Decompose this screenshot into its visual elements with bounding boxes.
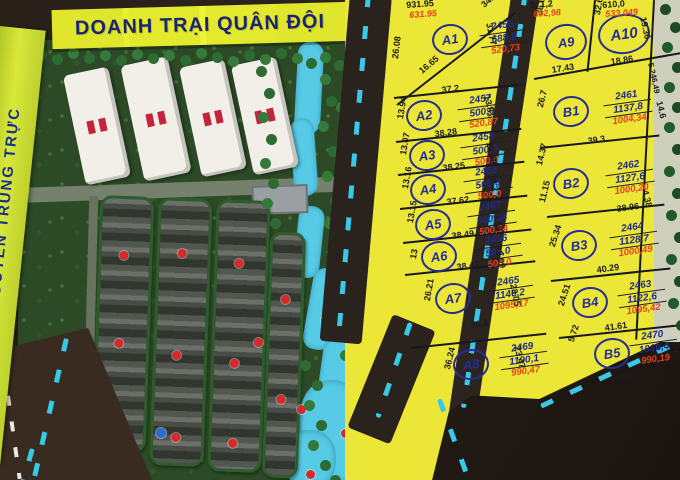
plot-label: B4 [581,294,600,311]
plot-circle: A7 [433,281,473,317]
red-marker-icon [119,251,128,260]
red-marker-icon [230,359,239,368]
red-marker-icon [178,249,187,258]
plot-circle: A6 [419,239,459,275]
dimension-label: 631.95 [409,8,437,20]
red-marker-icon [297,405,306,414]
masterplan-board: ĐƯỜNG NGUYỄN TRUNG TRỰC DOANH TRẠI QUÂN … [0,0,680,480]
building-sign [145,111,166,128]
plot-label: A6 [430,248,449,265]
plot-b3: B3 [559,228,599,264]
plot-label: A3 [418,147,437,164]
plot-label: A4 [419,181,438,198]
plot-label: B1 [562,103,581,120]
plot-circle: A5 [413,207,453,243]
plot-info-b5: 24701016,4990,19 [628,327,680,369]
plot-circle: A8 [451,347,491,383]
building-sign [254,108,275,125]
plot-label: B2 [562,175,581,192]
plot-circle: B1 [551,94,591,130]
red-marker-icon [276,395,285,404]
plot-b4: B4 [570,285,610,321]
red-marker-icon [306,470,315,479]
tree-cluster [300,360,311,371]
plot-circle: B2 [551,166,591,202]
blue-marker-icon [156,428,166,438]
plot-circle: B4 [570,285,610,321]
plot-circle: B5 [592,336,632,372]
plot-label: B3 [570,237,589,254]
plot-a9: A9 [543,21,590,62]
plot-label: A5 [424,216,443,233]
building-sign [86,118,107,135]
plot-circle: B3 [559,228,599,264]
plot-info-b3: 24641128,71000,49 [608,219,661,261]
red-marker-icon [234,259,243,268]
plot-label: A8 [462,356,481,373]
plot-info-b4: 24631122,61095,42 [616,277,669,319]
plot-label: A9 [557,33,576,50]
tree-cluster [660,4,671,15]
plot-label: B5 [603,345,622,362]
building-sign [202,110,223,127]
plot-a5: A5 [413,207,453,243]
plot-a6: A6 [419,239,459,275]
red-marker-icon [172,351,181,360]
plot-info-b1: 24611137,81004,34 [602,87,655,129]
plot-a1: A1 [430,22,470,58]
plot-a8: A8 [451,347,491,383]
red-marker-icon [254,338,263,347]
townhouse-row [149,197,212,467]
plot-b5: B5 [592,336,632,372]
plot-a7: A7 [433,281,473,317]
banner-label: DOANH TRẠI QUÂN ĐỘI [75,11,326,41]
plot-label: A1 [441,31,460,48]
banner-military-camp: DOANH TRẠI QUÂN ĐỘI [52,2,349,49]
plot-circle: A9 [543,21,590,62]
red-marker-icon [171,433,180,442]
red-marker-icon [281,295,290,304]
plot-label: A10 [609,24,639,45]
townhouse-row [207,199,270,473]
red-marker-icon [228,439,237,448]
plot-label: A2 [415,107,434,124]
dimension-label: 37.2 [441,83,460,95]
plot-b2: B2 [551,166,591,202]
plot-circle: A1 [430,22,470,58]
tree-cluster [256,66,267,77]
plot-label: A7 [444,290,463,307]
dimension-label: 13 [408,248,420,260]
red-marker-icon [114,339,123,348]
plot-b1: B1 [551,94,591,130]
dimension-label: 602,98 [533,7,561,19]
